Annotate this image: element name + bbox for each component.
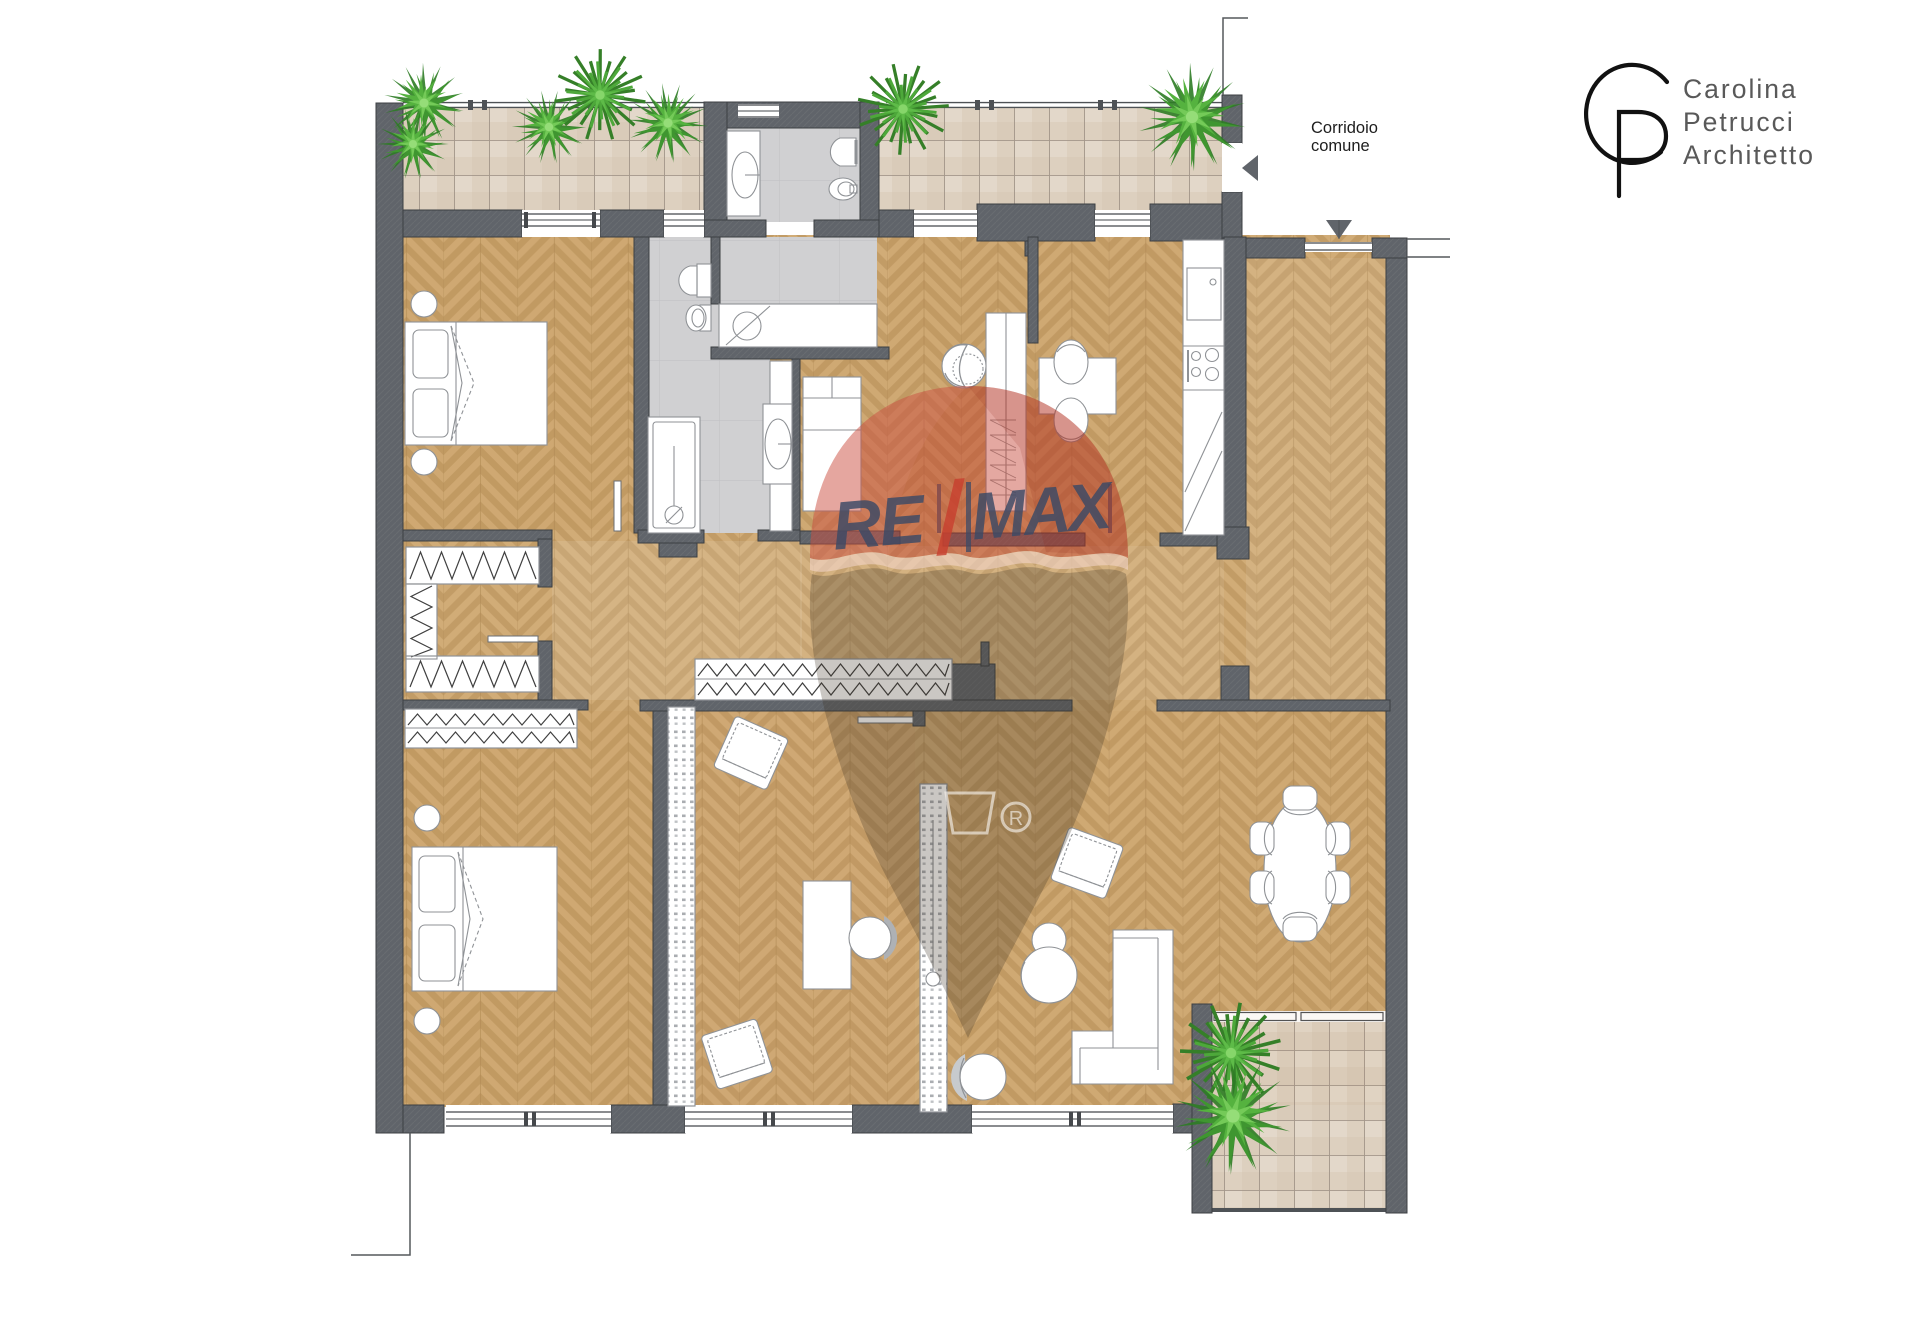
svg-text:Petrucci: Petrucci — [1683, 107, 1795, 137]
svg-text:MAX: MAX — [968, 467, 1119, 553]
svg-text:R: R — [1009, 808, 1023, 830]
svg-text:Corridoio: Corridoio — [1311, 119, 1378, 137]
svg-text:Architetto: Architetto — [1683, 140, 1815, 170]
svg-text:comune: comune — [1311, 137, 1370, 155]
svg-text:Carolina: Carolina — [1683, 74, 1798, 104]
svg-text:RE: RE — [829, 481, 930, 565]
